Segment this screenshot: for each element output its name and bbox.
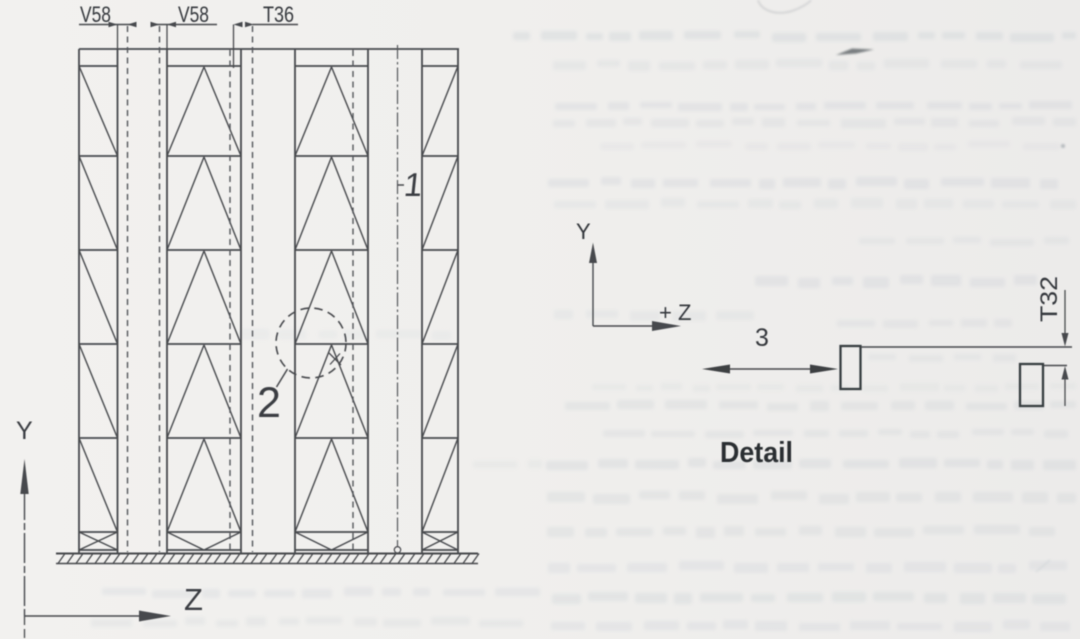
svg-text:1: 1 bbox=[402, 167, 424, 204]
svg-text:3: 3 bbox=[755, 324, 769, 352]
svg-text:Y: Y bbox=[16, 417, 33, 445]
svg-text:2: 2 bbox=[257, 379, 281, 427]
svg-text:V58: V58 bbox=[178, 2, 209, 27]
svg-text:V58: V58 bbox=[80, 2, 111, 27]
svg-text:T36: T36 bbox=[263, 2, 294, 27]
svg-text:Z: Z bbox=[184, 582, 203, 617]
svg-text:Detail: Detail bbox=[720, 437, 793, 469]
svg-text:+ Z: + Z bbox=[659, 300, 691, 325]
svg-text:T32: T32 bbox=[1036, 276, 1063, 322]
svg-text:Y: Y bbox=[576, 219, 591, 244]
